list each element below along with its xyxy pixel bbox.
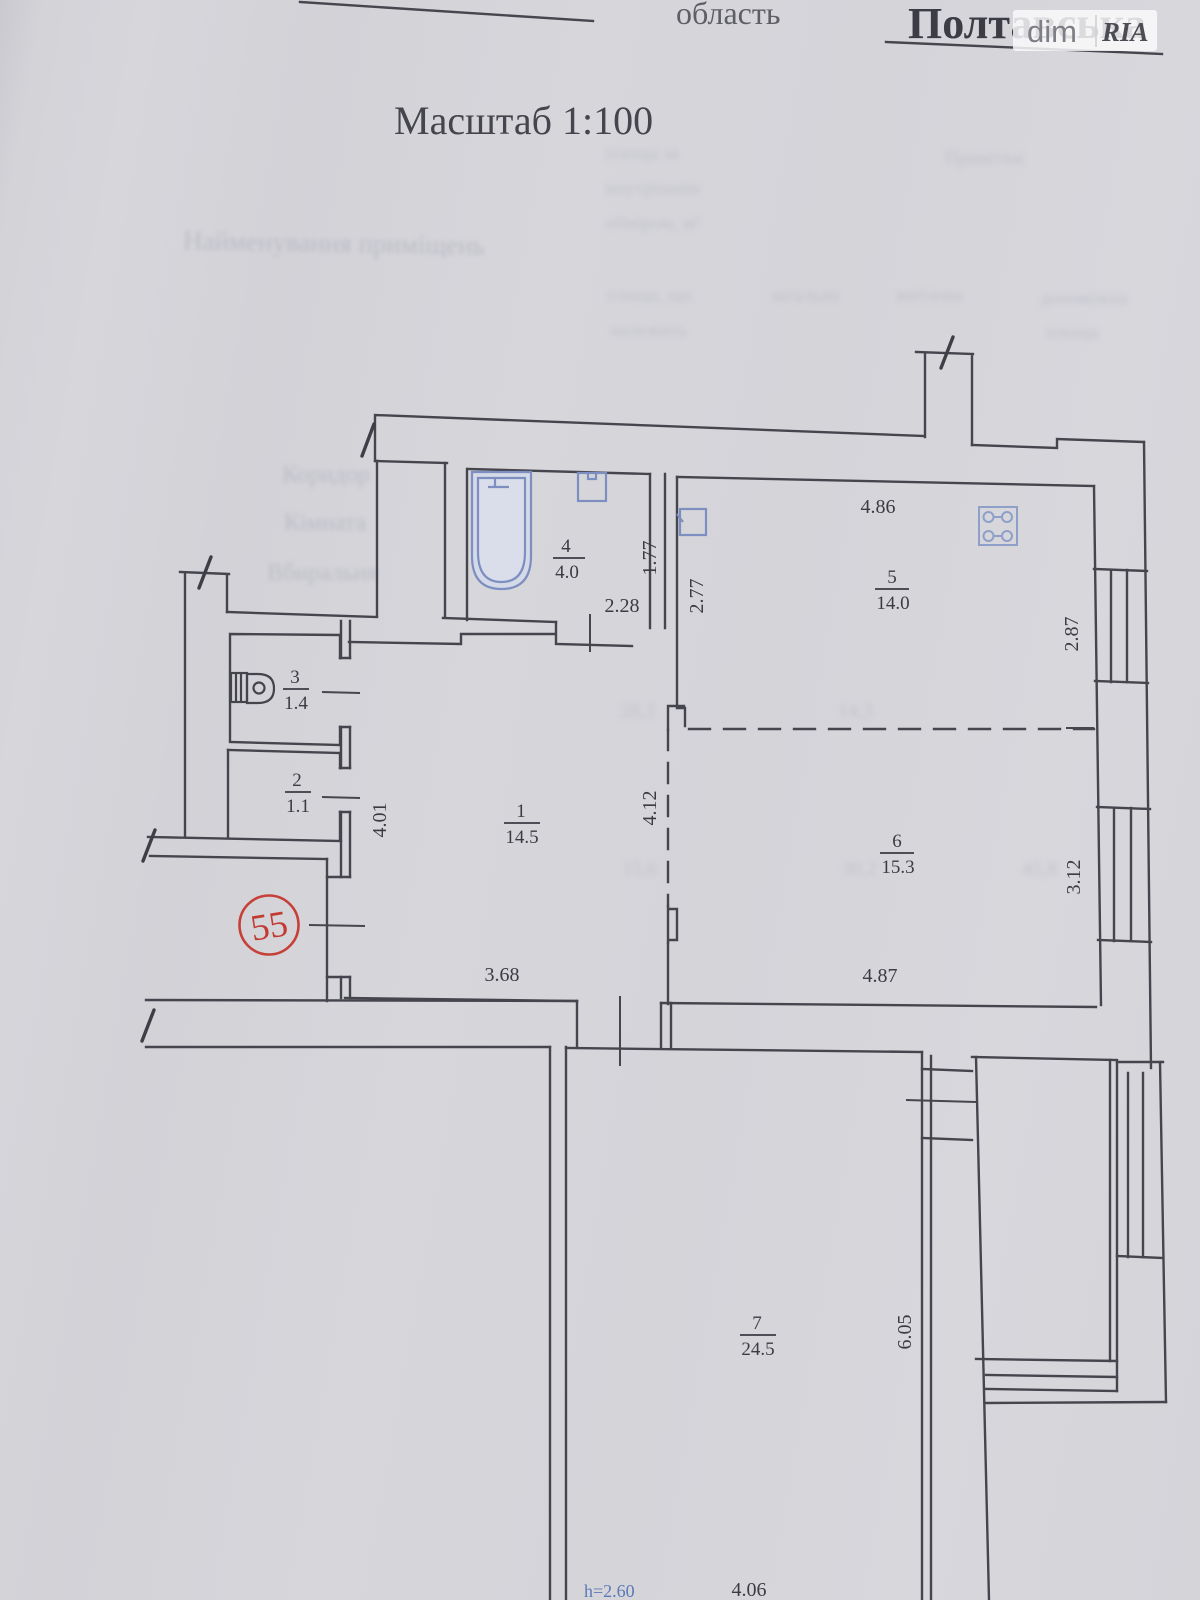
svg-text:RIA: RIA bbox=[1101, 17, 1149, 47]
svg-text:5: 5 bbox=[887, 567, 897, 588]
svg-text:14.5: 14.5 bbox=[505, 827, 538, 848]
svg-text:15.3: 15.3 bbox=[881, 857, 914, 878]
svg-text:4.86: 4.86 bbox=[861, 496, 896, 518]
svg-text:2.87: 2.87 bbox=[1061, 617, 1083, 652]
svg-text:3.68: 3.68 bbox=[485, 964, 520, 986]
svg-text:2.28: 2.28 bbox=[605, 595, 640, 617]
svg-text:4.01: 4.01 bbox=[369, 803, 391, 838]
svg-text:24.5: 24.5 bbox=[741, 1339, 774, 1360]
svg-text:область: область bbox=[676, 0, 780, 31]
svg-text:1.77: 1.77 bbox=[639, 541, 661, 576]
svg-text:1.4: 1.4 bbox=[284, 693, 308, 714]
svg-text:4.0: 4.0 bbox=[555, 562, 579, 583]
svg-text:h=2.60: h=2.60 bbox=[584, 1581, 635, 1600]
svg-text:4.12: 4.12 bbox=[639, 791, 661, 826]
svg-text:55: 55 bbox=[248, 903, 291, 949]
svg-text:dim: dim bbox=[1027, 14, 1077, 49]
svg-text:2.77: 2.77 bbox=[686, 579, 708, 614]
svg-text:3: 3 bbox=[290, 667, 300, 688]
svg-text:4: 4 bbox=[561, 536, 571, 557]
svg-text:7: 7 bbox=[752, 1313, 762, 1334]
svg-text:1: 1 bbox=[516, 801, 526, 822]
svg-text:Масштаб 1:100: Масштаб 1:100 bbox=[394, 98, 653, 143]
svg-text:4.06: 4.06 bbox=[732, 1579, 767, 1600]
svg-text:3.12: 3.12 bbox=[1063, 860, 1085, 895]
svg-text:1.1: 1.1 bbox=[286, 796, 310, 817]
svg-text:14.0: 14.0 bbox=[876, 593, 909, 614]
svg-text:4.87: 4.87 bbox=[863, 965, 898, 987]
svg-text:6: 6 bbox=[892, 831, 902, 852]
svg-text:2: 2 bbox=[292, 770, 302, 791]
svg-text:6.05: 6.05 bbox=[894, 1315, 916, 1350]
